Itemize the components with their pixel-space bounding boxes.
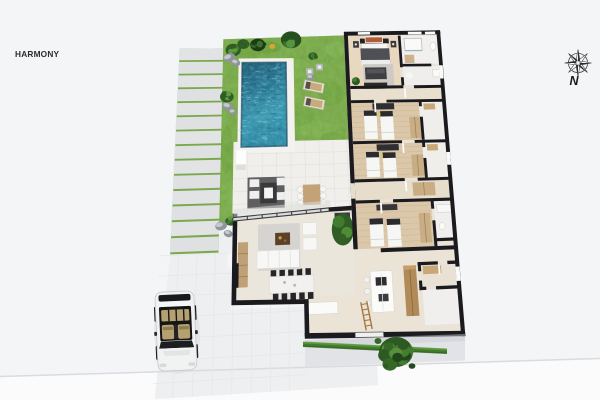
- svg-text:N: N: [570, 74, 580, 88]
- svg-text:HARMONY: HARMONY: [15, 49, 60, 59]
